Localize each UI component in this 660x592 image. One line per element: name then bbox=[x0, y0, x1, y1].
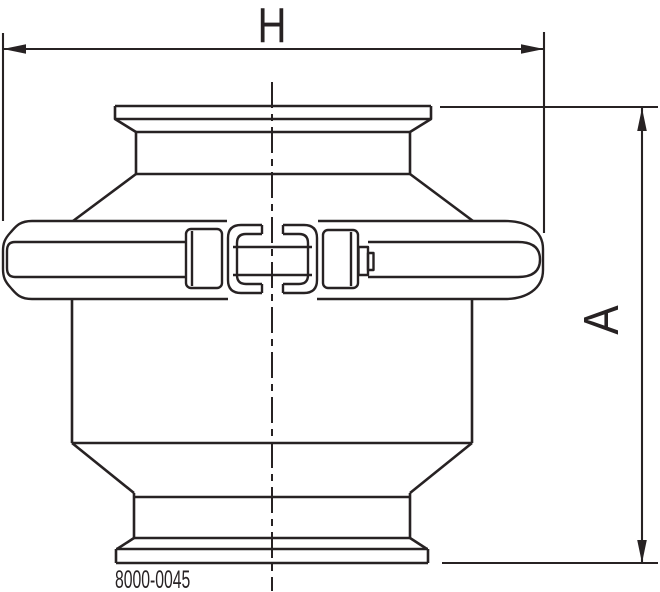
arrow-up-icon bbox=[637, 108, 647, 131]
technical-drawing-canvas: H A bbox=[0, 0, 660, 592]
clamp-band-left-inner bbox=[7, 242, 186, 277]
h-dimension-label: H bbox=[257, 0, 286, 53]
arrow-right-icon bbox=[521, 44, 544, 54]
top-cone-left-edge bbox=[73, 174, 136, 221]
h-dimension: H bbox=[3, 0, 544, 233]
top-cone-right-edge bbox=[410, 174, 473, 221]
arrow-down-icon bbox=[637, 540, 647, 563]
clamp-bracket-right-inner bbox=[283, 234, 308, 284]
valve-dimension-drawing: H A bbox=[0, 0, 660, 592]
clamp-bracket-left-inner bbox=[237, 234, 262, 284]
drawing-number: 8000-0045 bbox=[115, 566, 190, 592]
clamp-band-right-inner bbox=[368, 242, 540, 277]
clamp-bolt-flange bbox=[359, 247, 369, 275]
clamp-hinge-block-right bbox=[323, 230, 358, 288]
bottom-cone-left-edge bbox=[72, 443, 134, 493]
bottom-cone-right-edge bbox=[410, 443, 472, 493]
arrow-left-icon bbox=[3, 44, 26, 54]
bottom-flare-right bbox=[410, 538, 427, 549]
clamp-bolt-tip bbox=[368, 253, 374, 270]
bottom-flare-left bbox=[117, 538, 134, 549]
a-dimension-label: A bbox=[574, 305, 629, 334]
